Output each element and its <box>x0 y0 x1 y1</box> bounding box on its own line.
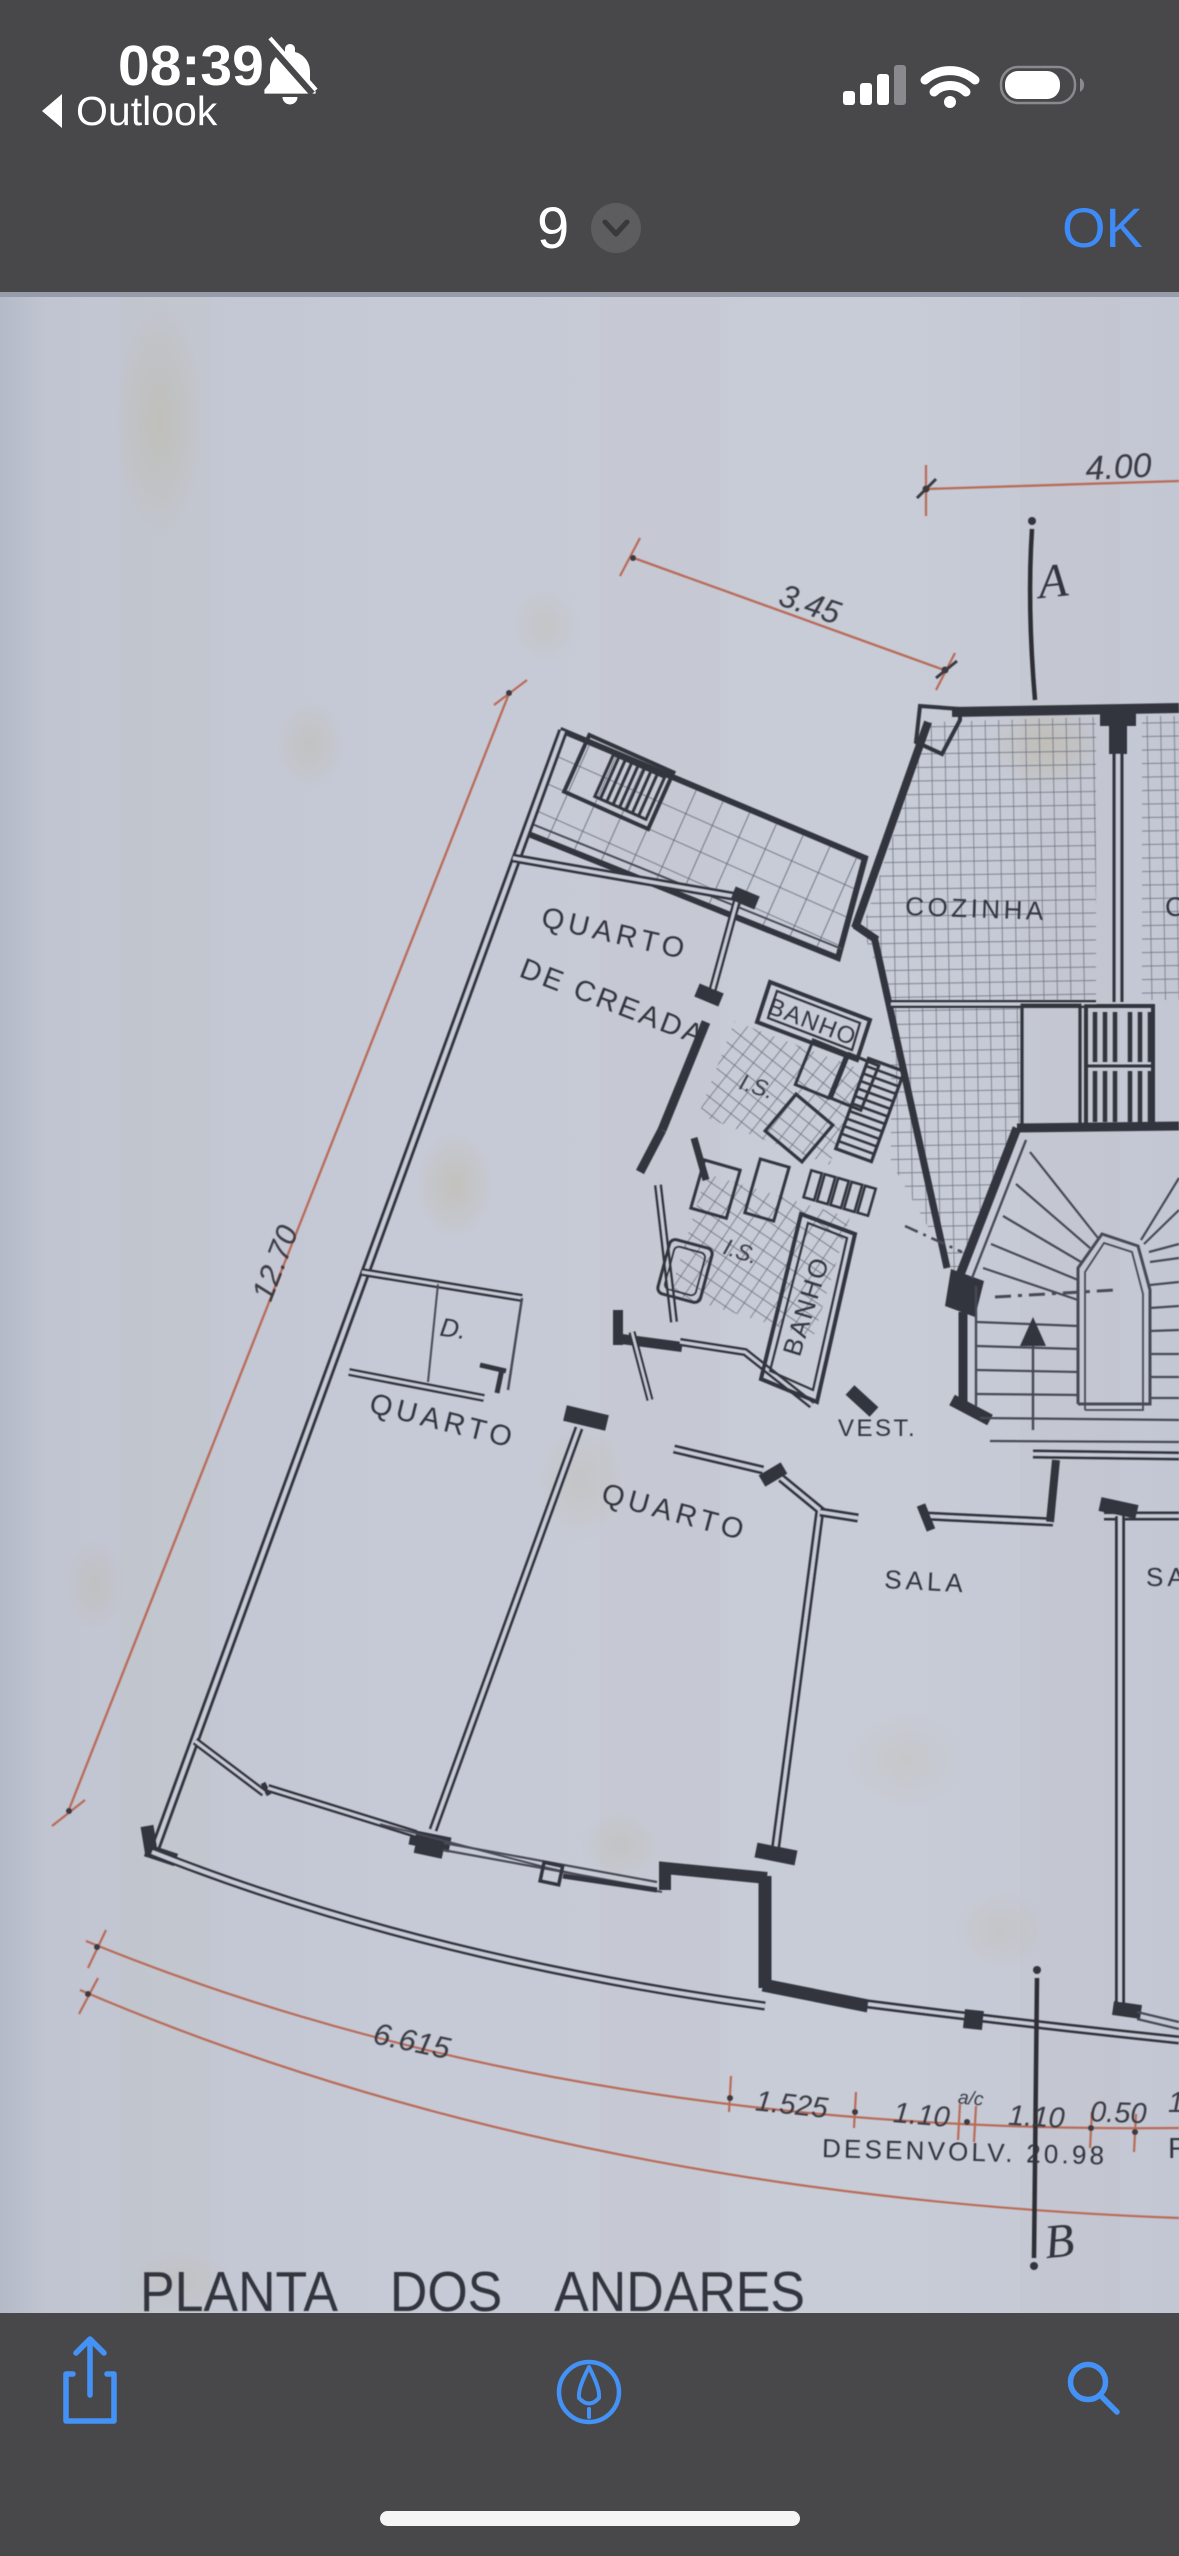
svg-text:D.: D. <box>438 1312 468 1345</box>
svg-text:Outlook: Outlook <box>76 88 218 134</box>
svg-text:SAL: SAL <box>1146 1562 1179 1592</box>
svg-text:a/c: a/c <box>957 2087 985 2110</box>
svg-text:1.10: 1.10 <box>892 2097 951 2134</box>
svg-text:SALA: SALA <box>884 1564 968 1598</box>
svg-text:1: 1 <box>1168 2087 1179 2119</box>
svg-text:0.50: 0.50 <box>1090 2096 1148 2130</box>
svg-text:1.10: 1.10 <box>1007 2100 1065 2135</box>
svg-text:OK: OK <box>1062 196 1143 259</box>
svg-text:VEST.: VEST. <box>838 1415 917 1442</box>
svg-text:9: 9 <box>537 196 569 261</box>
svg-text:COZINHA: COZINHA <box>905 891 1047 926</box>
svg-text:4.00: 4.00 <box>1084 447 1152 488</box>
svg-text:B: B <box>1042 2213 1077 2269</box>
svg-text:R: R <box>1168 2133 1179 2165</box>
svg-text:C: C <box>1165 892 1179 922</box>
